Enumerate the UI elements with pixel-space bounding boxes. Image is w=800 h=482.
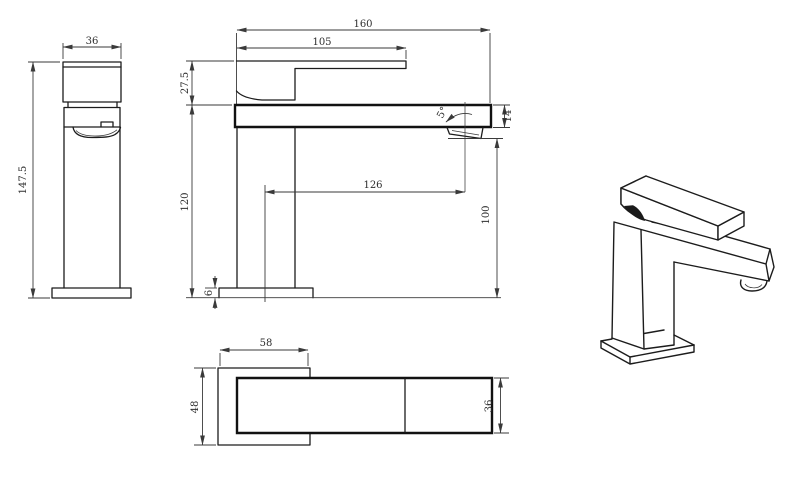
perspective-aerator [741,280,767,291]
dim-handle-height-label: 27.5 [180,72,191,94]
dim-spout-width-label: 36 [484,400,495,413]
dim-base-width-label: 58 [260,338,273,349]
dim-side-body-height: 120 [180,105,192,298]
dim-spout-tip-height-label: 14 [503,110,514,123]
dim-plan-base-depth: 48 [190,368,216,445]
technical-drawing: 36 147.5 160 105 [0,0,800,478]
dim-plan-base-width: 58 [220,338,308,366]
plan-view: 58 48 36 [190,338,509,445]
perspective-view [601,176,774,364]
dim-front-width-label: 36 [86,36,99,47]
dim-side-spout-clearance: 100 [448,139,503,298]
side-column [237,128,295,288]
front-aerator-tab [101,122,113,127]
plan-view-outline [218,368,492,445]
dim-body-height-label: 120 [180,192,191,211]
plan-spout-bar [237,378,492,433]
dim-plan-spout-width: 36 [484,378,509,433]
dim-side-handle-length: 105 [237,37,406,59]
side-view-outline [186,33,501,298]
front-view-outline [52,62,131,298]
side-handle-lever [237,61,407,100]
front-body [64,108,120,289]
dim-side-base-thickness: 6 [204,276,217,309]
side-spout-body [235,105,491,127]
side-base-plate [219,288,313,298]
dim-handle-length-label: 105 [312,37,331,48]
front-view: 36 147.5 [18,36,131,298]
perspective-column [612,223,674,349]
dim-spout-clearance-label: 100 [481,205,492,224]
side-view: 160 105 27.5 120 6 126 [180,19,514,309]
dim-spout-angle-label: 5° [435,105,450,120]
front-handle [63,62,121,102]
dim-base-thickness-label: 6 [204,290,215,296]
dim-side-handle-height: 27.5 [180,61,234,105]
dim-side-spout-tip-height: 14 [493,105,514,128]
front-base-plate [52,288,131,298]
dim-front-width: 36 [63,36,121,59]
dim-front-height-label: 147.5 [18,166,29,195]
dim-front-height: 147.5 [18,62,60,298]
dim-spout-reach-label: 126 [363,180,382,191]
dim-side-spout-angle: 5° [435,105,472,122]
perspective-spout-underside [674,262,769,281]
dim-base-depth-label: 48 [190,401,201,414]
perspective-handle [621,176,744,240]
drawing-sheet: 36 147.5 160 105 [0,0,800,478]
perspective-base-plate [601,330,694,364]
dim-overall-length-label: 160 [353,19,372,30]
